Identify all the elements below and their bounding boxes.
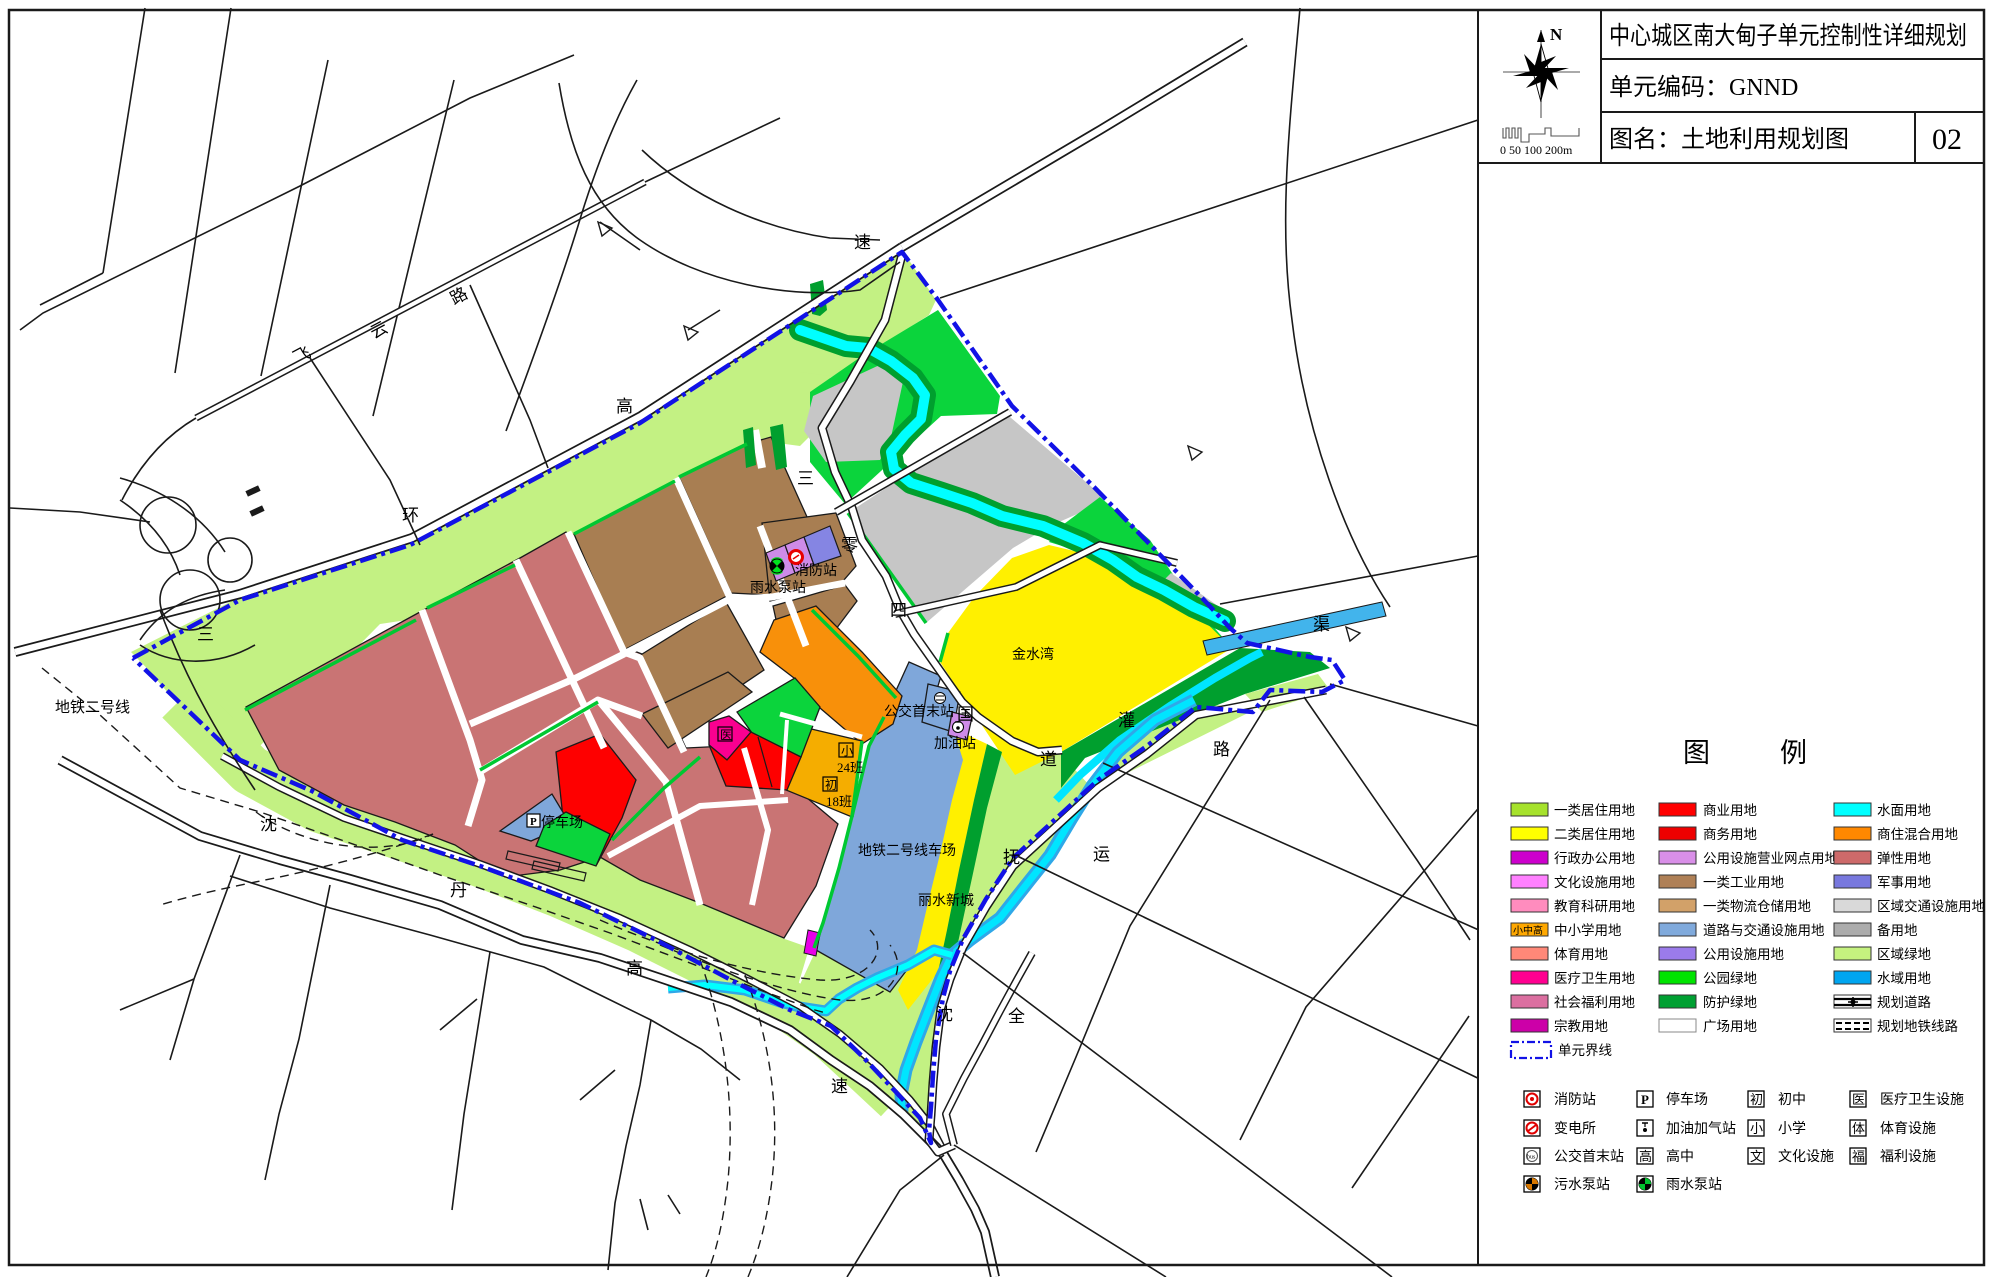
svg-text:初中: 初中 [1778,1091,1806,1108]
svg-text:小: 小 [1750,1121,1763,1136]
svg-text:金水湾: 金水湾 [1012,646,1054,663]
svg-text:医疗卫生用地: 医疗卫生用地 [1554,971,1635,986]
svg-text:医: 医 [1852,1092,1865,1107]
svg-text:高: 高 [626,959,643,978]
svg-text:渠: 渠 [1313,615,1330,634]
svg-text:丹: 丹 [450,881,467,900]
svg-text:三: 三 [797,469,814,488]
svg-text:污水泵站: 污水泵站 [1554,1177,1610,1193]
svg-text:雨水泵站: 雨水泵站 [1666,1177,1722,1193]
svg-text:规划地铁线路: 规划地铁线路 [1877,1019,1958,1034]
svg-text:环: 环 [402,506,419,525]
svg-text:丽水新城: 丽水新城 [918,893,974,909]
svg-text:bus: bus [1527,1155,1536,1161]
svg-text:公用设施用地: 公用设施用地 [1703,947,1784,962]
svg-text:初: 初 [1750,1092,1763,1107]
svg-text:医: 医 [720,728,732,742]
svg-text:行政办公用地: 行政办公用地 [1554,851,1635,866]
svg-text:高: 高 [1639,1149,1652,1164]
svg-text:广场用地: 广场用地 [1703,1019,1757,1034]
svg-text:公园绿地: 公园绿地 [1703,971,1757,986]
svg-text:防护绿地: 防护绿地 [1703,995,1757,1010]
svg-text:体育用地: 体育用地 [1554,947,1608,962]
svg-text:文: 文 [1750,1149,1763,1164]
svg-text:规划道路: 规划道路 [1877,995,1931,1010]
svg-text:P: P [1641,1092,1649,1107]
svg-text:四: 四 [890,601,907,620]
svg-text:小中高: 小中高 [1513,924,1543,937]
svg-text:速: 速 [831,1077,848,1096]
svg-text:初: 初 [825,778,837,792]
svg-text:例: 例 [1780,738,1807,768]
svg-text:加油加气站: 加油加气站 [1666,1121,1736,1137]
svg-text:水域用地: 水域用地 [1877,971,1931,986]
svg-text:18班: 18班 [826,794,852,809]
svg-text:图名：土地利用规划图: 图名：土地利用规划图 [1609,126,1849,153]
svg-text:0 50 100 200m: 0 50 100 200m [1500,143,1573,157]
svg-text:零: 零 [841,536,858,555]
svg-text:雨水泵站: 雨水泵站 [750,580,806,596]
svg-text:消防站: 消防站 [1554,1092,1596,1108]
svg-text:停车场: 停车场 [1666,1091,1708,1108]
svg-text:02: 02 [1932,123,1962,156]
svg-text:单元编码：GNND: 单元编码：GNND [1609,74,1798,101]
svg-text:福利设施: 福利设施 [1880,1149,1936,1165]
svg-text:P: P [530,816,537,828]
svg-text:体育设施: 体育设施 [1880,1121,1936,1137]
svg-text:高中: 高中 [1666,1148,1694,1165]
svg-text:弹性用地: 弹性用地 [1877,851,1931,866]
svg-text:道: 道 [1040,750,1057,769]
svg-text:商务用地: 商务用地 [1703,827,1757,842]
svg-text:商住混合用地: 商住混合用地 [1877,827,1958,842]
svg-text:医疗卫生设施: 医疗卫生设施 [1880,1092,1964,1108]
svg-text:国: 国 [957,705,974,724]
svg-text:中小学用地: 中小学用地 [1554,923,1622,938]
svg-text:24班: 24班 [837,760,863,775]
svg-text:高: 高 [616,397,633,416]
svg-text:体: 体 [1852,1121,1865,1136]
svg-text:公用设施营业网点用地: 公用设施营业网点用地 [1703,851,1838,866]
svg-text:加油站: 加油站 [934,736,976,752]
svg-text:路: 路 [1213,740,1230,759]
svg-text:一类居住用地: 一类居住用地 [1554,803,1635,818]
svg-text:宗教用地: 宗教用地 [1554,1019,1608,1034]
svg-text:停车场: 停车场 [541,814,583,831]
svg-text:云: 云 [367,318,391,343]
svg-text:速: 速 [854,233,871,252]
svg-text:教育科研用地: 教育科研用地 [1554,899,1635,914]
svg-text:福: 福 [1852,1149,1865,1164]
svg-text:沈: 沈 [260,815,277,834]
svg-text:备用地: 备用地 [1877,922,1918,938]
svg-text:沈: 沈 [936,1005,953,1024]
svg-text:一类工业用地: 一类工业用地 [1703,875,1784,890]
svg-text:文化设施: 文化设施 [1778,1149,1834,1165]
svg-text:中心城区南大甸子单元控制性详细规划: 中心城区南大甸子单元控制性详细规划 [1609,22,1967,50]
svg-text:道路与交通设施用地: 道路与交通设施用地 [1703,922,1825,938]
svg-text:商业用地: 商业用地 [1703,803,1757,818]
svg-text:全: 全 [1008,1007,1025,1026]
svg-text:小: 小 [841,744,853,758]
svg-text:变电所: 变电所 [1554,1121,1596,1137]
svg-text:N: N [1550,25,1563,44]
svg-text:公交首末站: 公交首末站 [884,703,954,720]
svg-text:军事用地: 军事用地 [1877,875,1931,890]
svg-text:社会福利用地: 社会福利用地 [1554,995,1635,1010]
svg-text:图: 图 [1683,738,1710,768]
svg-text:小学: 小学 [1778,1121,1806,1137]
svg-text:三: 三 [197,625,214,644]
svg-text:区域交通设施用地: 区域交通设施用地 [1877,898,1985,914]
svg-text:运: 运 [1093,845,1110,864]
svg-text:单元界线: 单元界线 [1558,1043,1612,1058]
svg-text:灌: 灌 [1118,711,1135,730]
svg-text:水面用地: 水面用地 [1877,803,1931,818]
svg-text:一类物流仓储用地: 一类物流仓储用地 [1703,899,1811,914]
svg-text:地铁二号线车场: 地铁二号线车场 [858,842,956,859]
svg-text:消防站: 消防站 [795,563,837,579]
svg-text:地铁二号线: 地铁二号线 [55,699,130,716]
svg-text:区域绿地: 区域绿地 [1877,947,1931,962]
svg-text:文化设施用地: 文化设施用地 [1554,875,1635,890]
svg-text:公交首末站: 公交首末站 [1554,1148,1624,1165]
svg-text:抚: 抚 [1003,848,1020,867]
svg-text:二类居住用地: 二类居住用地 [1554,827,1635,842]
